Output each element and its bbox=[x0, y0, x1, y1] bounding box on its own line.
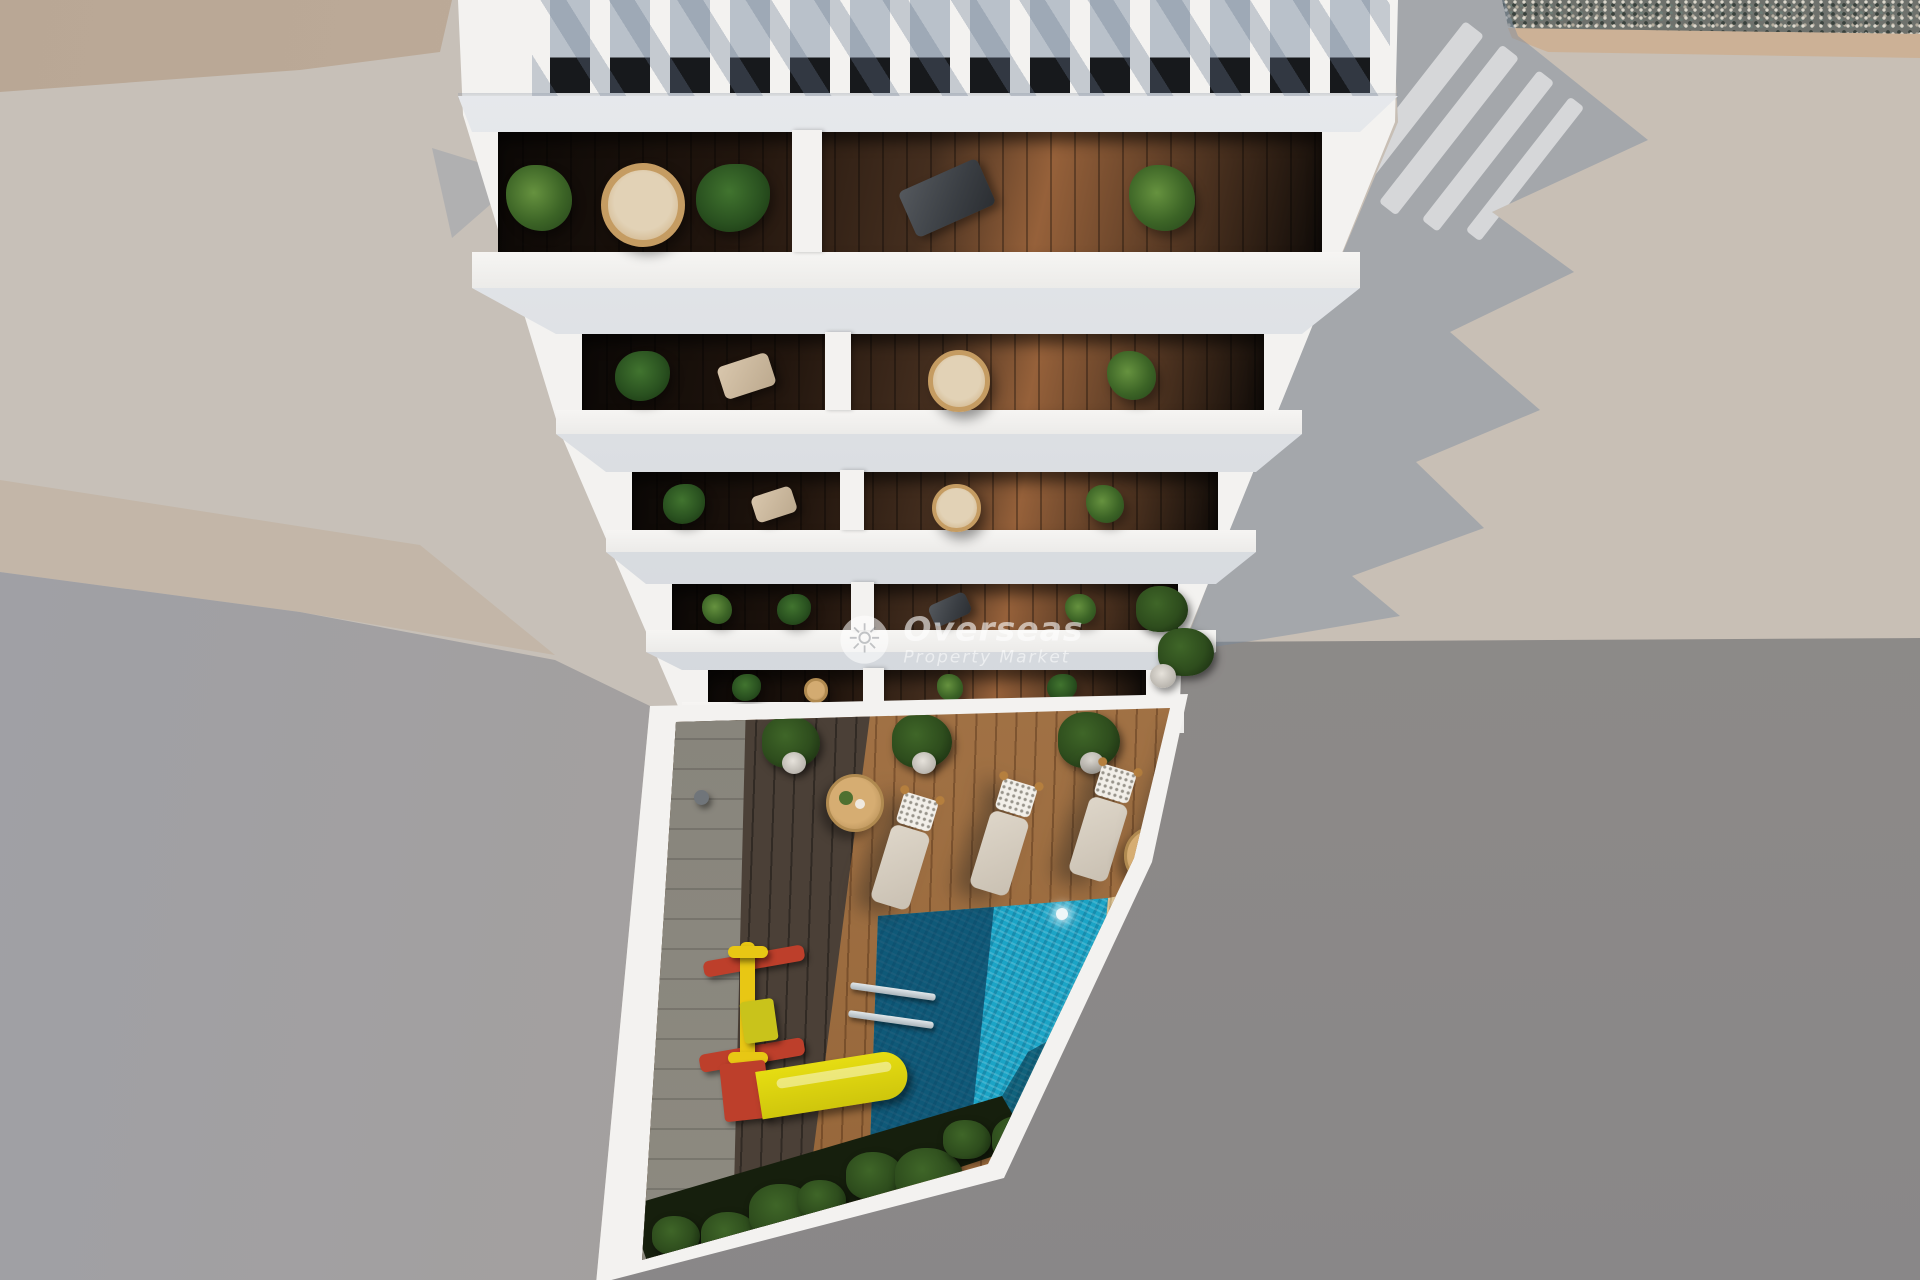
floor-5-parapet bbox=[472, 252, 1360, 288]
watermark-tagline: Property Market bbox=[903, 647, 1083, 667]
lounger-body bbox=[1068, 795, 1130, 883]
round-table bbox=[804, 678, 828, 702]
floor-4-divider bbox=[825, 332, 851, 410]
lounger-body bbox=[969, 809, 1031, 897]
watermark-brand: Overseas bbox=[903, 613, 1083, 648]
lounger-body bbox=[870, 823, 932, 911]
watermark: ☼ Overseas Property Market bbox=[840, 613, 1083, 668]
sun-icon: ☼ bbox=[846, 620, 882, 660]
floor-4-parapet bbox=[556, 410, 1302, 434]
plant-pot bbox=[1150, 664, 1176, 688]
palm-plant bbox=[1107, 351, 1156, 400]
hanging-chair bbox=[928, 350, 990, 412]
hanging-chair bbox=[601, 163, 685, 247]
palm-plant bbox=[937, 674, 963, 700]
floor-3-divider bbox=[840, 470, 864, 530]
swing-cross-top bbox=[728, 946, 768, 958]
swing-seat bbox=[739, 998, 779, 1044]
table-plate bbox=[855, 799, 865, 809]
watermark-badge: ☼ bbox=[840, 616, 888, 664]
watermark-text: Overseas Property Market bbox=[903, 613, 1083, 668]
floor-3-parapet bbox=[606, 530, 1256, 552]
table-plant bbox=[839, 791, 853, 805]
side-table bbox=[826, 774, 884, 832]
aerial-property-render: ☼ Overseas Property Market bbox=[0, 0, 1920, 1280]
sun-lounger bbox=[964, 774, 1043, 902]
floor-1-divider bbox=[863, 668, 885, 702]
balcony-planter bbox=[1136, 586, 1188, 632]
hanging-chair bbox=[932, 484, 981, 533]
floor-4-balcony bbox=[582, 334, 1264, 410]
floor-3-balcony bbox=[632, 472, 1218, 530]
pool-shower bbox=[694, 790, 709, 805]
floor-5-divider bbox=[792, 130, 822, 252]
